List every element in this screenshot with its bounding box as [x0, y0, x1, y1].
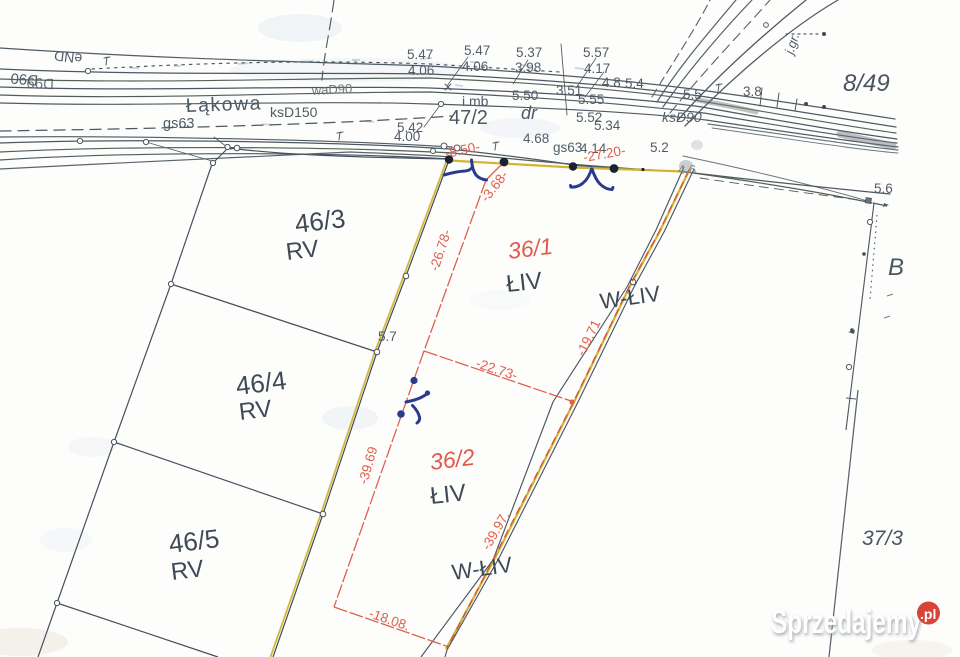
svg-text:46/5: 46/5: [167, 523, 221, 559]
svg-text:3.98: 3.98: [515, 60, 541, 75]
svg-text:5.57: 5.57: [583, 45, 609, 60]
svg-text:5.4: 5.4: [625, 76, 644, 91]
svg-text:37/3: 37/3: [862, 527, 903, 550]
svg-text:ksD90: ksD90: [662, 109, 702, 125]
svg-text:.pl: .pl: [920, 606, 936, 622]
svg-text:5.55: 5.55: [578, 92, 604, 107]
svg-text:5.47: 5.47: [464, 43, 490, 58]
svg-text:RV: RV: [169, 555, 205, 586]
svg-text:waD90: waD90: [310, 81, 352, 98]
svg-text:ksD150: ksD150: [270, 104, 318, 120]
svg-text:5.6: 5.6: [874, 181, 893, 196]
svg-text:ŁIV: ŁIV: [505, 267, 544, 298]
svg-text:5.7: 5.7: [378, 329, 397, 344]
svg-text:46/3: 46/3: [293, 203, 347, 239]
svg-text:8/49: 8/49: [843, 70, 890, 97]
svg-text:4.06: 4.06: [462, 59, 488, 74]
svg-text:3.8: 3.8: [743, 84, 762, 99]
svg-text:D99: D99: [26, 74, 54, 92]
svg-text:5.5: 5.5: [683, 87, 702, 102]
svg-text:5.34: 5.34: [594, 118, 621, 133]
svg-text:Łąkowa: Łąkowa: [185, 92, 262, 117]
svg-text:4.6: 4.6: [678, 162, 696, 177]
svg-text:ŁIV: ŁIV: [429, 479, 468, 510]
svg-text:gs63: gs63: [163, 116, 194, 132]
svg-text:36/2: 36/2: [428, 444, 476, 475]
svg-text:5.37: 5.37: [516, 45, 542, 60]
svg-text:5.50: 5.50: [512, 88, 538, 103]
svg-text:B: B: [888, 254, 904, 281]
svg-text:5.47: 5.47: [407, 47, 433, 62]
svg-text:4.00: 4.00: [394, 129, 420, 144]
svg-text:eND: eND: [53, 48, 83, 67]
svg-text:gs63: gs63: [553, 140, 582, 155]
svg-text:47/2: 47/2: [449, 107, 488, 129]
svg-text:4.06: 4.06: [408, 63, 434, 78]
svg-text:36/1: 36/1: [506, 233, 554, 264]
svg-text:4.8: 4.8: [602, 75, 621, 90]
svg-text:dr: dr: [521, 103, 538, 123]
svg-text:5.2: 5.2: [650, 140, 669, 155]
svg-text:RV: RV: [284, 235, 320, 266]
svg-text:Sprzedajemy: Sprzedajemy: [771, 603, 921, 640]
svg-text:4.17: 4.17: [584, 61, 610, 76]
svg-text:RV: RV: [237, 395, 273, 426]
svg-text:4.68: 4.68: [523, 131, 549, 146]
